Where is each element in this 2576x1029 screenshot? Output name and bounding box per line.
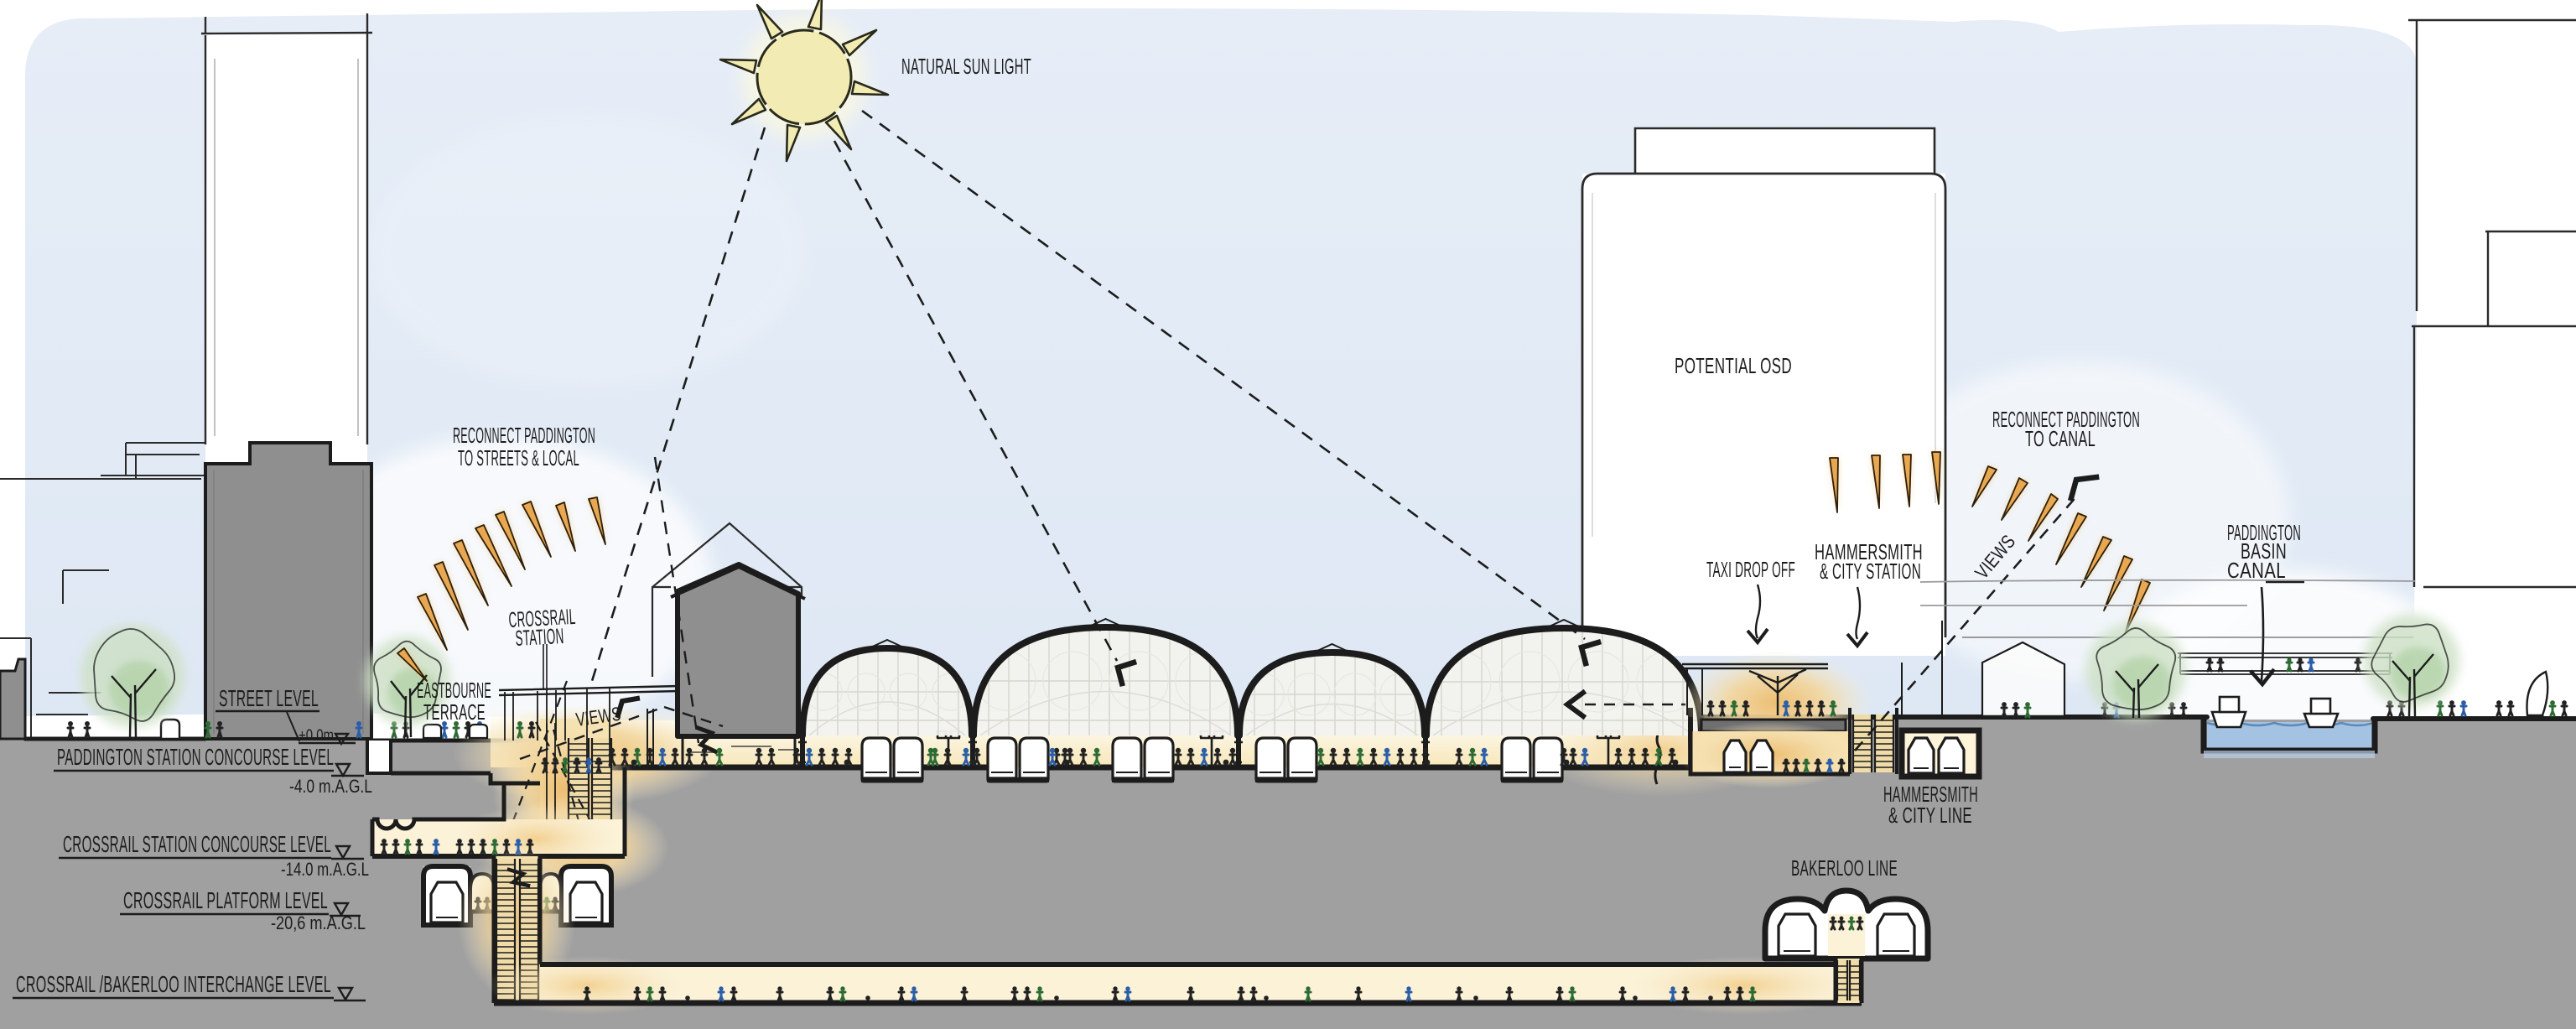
- svg-text:-20,6 m.A.G.L: -20,6 m.A.G.L: [271, 912, 366, 933]
- svg-text:CROSSRAIL STATION CONCOURSE LE: CROSSRAIL STATION CONCOURSE LEVEL: [63, 831, 331, 857]
- svg-text:TO STREETS & LOCAL: TO STREETS & LOCAL: [458, 445, 579, 470]
- svg-text:TERRACE: TERRACE: [423, 699, 486, 725]
- svg-text:CROSSRAIL /BAKERLOO INTERCHANG: CROSSRAIL /BAKERLOO INTERCHANGE LEVEL: [16, 971, 331, 997]
- svg-text:CANAL: CANAL: [2227, 558, 2286, 583]
- svg-text:-4.0 m.A.G.L: -4.0 m.A.G.L: [289, 776, 372, 797]
- svg-text:TO CANAL: TO CANAL: [2025, 426, 2096, 451]
- svg-text:POTENTIAL OSD: POTENTIAL OSD: [1675, 353, 1792, 378]
- svg-text:TAXI DROP OFF: TAXI DROP OFF: [1706, 557, 1795, 582]
- svg-text:-14.0 m.A.G.L: -14.0 m.A.G.L: [281, 859, 369, 880]
- svg-text:CROSSRAIL PLATFORM LEVEL: CROSSRAIL PLATFORM LEVEL: [123, 887, 328, 913]
- svg-text:& CITY LINE: & CITY LINE: [1888, 803, 1972, 828]
- svg-text:STREET LEVEL: STREET LEVEL: [219, 685, 319, 711]
- svg-text:PADDINGTON STATION CONCOURSE L: PADDINGTON STATION CONCOURSE LEVEL: [57, 744, 334, 770]
- svg-text:STATION: STATION: [515, 623, 564, 651]
- svg-text:BAKERLOO LINE: BAKERLOO LINE: [1791, 855, 1898, 881]
- svg-text:& CITY STATION: & CITY STATION: [1820, 559, 1921, 584]
- svg-text:NATURAL SUN LIGHT: NATURAL SUN LIGHT: [901, 54, 1031, 79]
- svg-text:RECONNECT PADDINGTON: RECONNECT PADDINGTON: [453, 423, 595, 448]
